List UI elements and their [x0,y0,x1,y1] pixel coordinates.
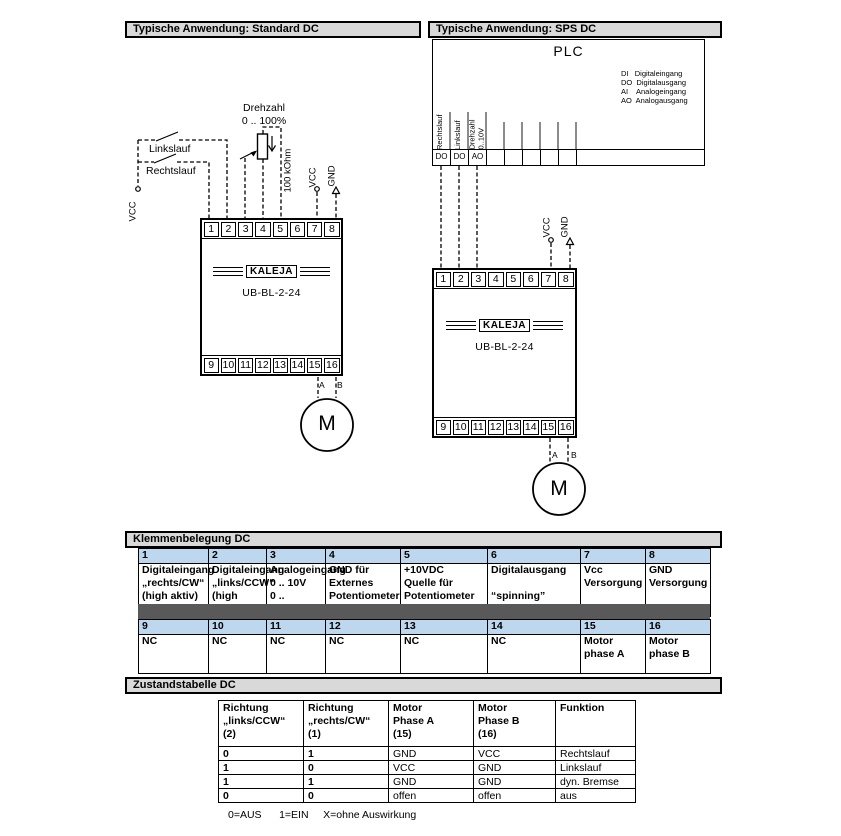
terminal-row-top: 12345678 [434,270,575,288]
terminal-cell: 2 [221,222,236,237]
table-header-cell: 8 [646,549,711,564]
terminal-cell: 3 [471,272,487,287]
table-cell: 0 [304,761,389,775]
table-cell: offen [474,789,556,803]
terminal-cell: 13 [506,420,522,435]
pot-wiper-arrowhead [251,151,258,157]
controller-left: 12345678 KALEJA UB-BL-2-24 9101112131415… [200,218,343,376]
terminal-cell: 2 [453,272,469,287]
table-cell: 0 [219,747,304,761]
terminal-number-row: 910111213141516 [139,620,711,635]
zustand-header-row: Richtung „links/CCW“ (2)Richtung „rechts… [219,701,636,747]
plc-port-row: DODOAO [433,149,704,165]
plc-port-cell [577,150,704,165]
device-body: KALEJA UB-BL-2-24 [434,288,575,418]
logo-deco-right [300,267,330,276]
table-header-cell: 11 [267,620,326,635]
plc-port-cell [523,150,541,165]
table-cell: 1 [304,775,389,789]
table-header-cell: Richtung „links/CCW“ (2) [219,701,304,747]
klemmen-table-lower: 910111213141516 NCNCNCNCNCNCMotor phase … [138,619,711,674]
brand-name: KALEJA [479,319,530,332]
table-header-cell: Funktion [556,701,636,747]
table-cell: NC [267,635,326,674]
table-header-cell: 13 [401,620,488,635]
table-cell: GND [474,761,556,775]
label-gnd-left: GND [328,153,339,187]
switch-blade-linkslauf [156,132,178,141]
label-rechtslauf: Rechtslauf [146,165,196,177]
plc-legend-line: AI Analogeingang [621,87,688,96]
label-vcc-right: VCC [543,206,554,238]
plc-port-label-drehzahl: Drehzahl 0..10V [469,112,486,150]
footnote: 0=AUS 1=EIN X=ohne Auswirkung [228,809,416,821]
plc-do-wires [441,166,477,268]
device-body: KALEJA UB-BL-2-24 [202,238,341,356]
motor-phase-a-label-left: A [319,380,325,390]
plc-port-cell: DO [451,150,469,165]
terminal-cell: 16 [324,358,339,373]
table-cell: VCC [389,761,474,775]
terminal-cell: 15 [307,358,322,373]
terminal-cell: 1 [436,272,452,287]
zustand-row: 01GNDVCCRechtslauf [219,747,636,761]
terminal-cell: 9 [436,420,452,435]
section-header-standard-dc: Typische Anwendung: Standard DC [125,21,421,38]
terminal-cell: 8 [324,222,339,237]
table-cell: 0 [304,789,389,803]
terminal-number-row: 12345678 [139,549,711,564]
zustand-row: 00offenoffenaus [219,789,636,803]
logo-deco-left [213,267,243,276]
table-cell: Motor phase A [581,635,646,674]
table-header-cell: 12 [326,620,401,635]
table-cell: 1 [219,775,304,789]
table-header-cell: Richtung „rechts/CW“ (1) [304,701,389,747]
table-cell: Motor phase B [646,635,711,674]
terminal-row-bottom: 910111213141516 [434,418,575,436]
table-header-cell: 9 [139,620,209,635]
table-header-cell: 6 [488,549,581,564]
table-header-cell: 16 [646,620,711,635]
table-cell: NC [209,635,267,674]
plc-port-cell: DO [433,150,451,165]
plc-legend-line: DI Digitaleingang [621,69,688,78]
terminal-cell: 14 [290,358,305,373]
terminal-cell: 4 [255,222,270,237]
logo-deco-right [533,321,563,330]
section-header-sps-dc: Typische Anwendung: SPS DC [428,21,722,38]
table-cell: NC [488,635,581,674]
table-cell: GND [389,747,474,761]
vcc-terminal-circle-right [549,238,554,243]
terminal-cell: 12 [255,358,270,373]
plc-port-cell [559,150,577,165]
plc-port-cell [505,150,523,165]
table-cell: dyn. Bremse [556,775,636,789]
motor-phase-b-label-left: B [337,380,343,390]
table-cell: NC [139,635,209,674]
model-number: UB-BL-2-24 [202,287,341,299]
label-linkslauf: Linkslauf [149,143,190,155]
table-cell: NC [401,635,488,674]
potentiometer-body [258,134,268,159]
plc-title: PLC [433,43,704,59]
terminal-cell: 9 [204,358,219,373]
terminal-cell: 1 [204,222,219,237]
brand-name: KALEJA [246,265,297,278]
model-number: UB-BL-2-24 [434,341,575,353]
zustand-row: 11GNDGNDdyn. Bremse [219,775,636,789]
table-header-cell: 14 [488,620,581,635]
terminal-row-bottom: 910111213141516 [202,356,341,374]
terminal-cell: 6 [290,222,305,237]
terminal-function-row: NCNCNCNCNCNCMotor phase AMotor phase B [139,635,711,674]
controller-right: 12345678 KALEJA UB-BL-2-24 9101112131415… [432,268,577,438]
terminal-cell: 10 [221,358,236,373]
label-drehzahl-pot: Drehzahl 0 .. 100% [233,102,295,128]
label-gnd-right: GND [561,204,572,238]
switch-blade-rechtslauf [154,154,176,163]
terminal-cell: 4 [488,272,504,287]
terminal-cell: 15 [541,420,557,435]
terminal-row-top: 12345678 [202,220,341,238]
terminal-cell: 16 [558,420,574,435]
label-100kohm: 100 kOhm [284,143,295,193]
table-header-cell: 4 [326,549,401,564]
brand-logo: KALEJA [202,265,341,278]
gnd-arrow-left [333,187,340,194]
terminal-cell: 12 [488,420,504,435]
plc-legend: DI DigitaleingangDO DigitalausgangAI Ana… [621,69,688,105]
terminal-cell: 3 [238,222,253,237]
plc-port-label-rechtslauf: Rechtslauf [436,112,446,150]
plc-port-cell [487,150,505,165]
terminal-cell: 8 [558,272,574,287]
separator-bar [138,604,710,619]
terminal-cell: 11 [471,420,487,435]
zustand-row: 10VCCGNDLinkslauf [219,761,636,775]
section-header-zustandstabelle: Zustandstabelle DC [125,677,722,694]
table-cell: Rechtslauf [556,747,636,761]
brand-logo: KALEJA [434,319,575,332]
table-cell: 0 [219,789,304,803]
table-cell: Linkslauf [556,761,636,775]
table-cell: NC [326,635,401,674]
table-header-cell: 3 [267,549,326,564]
gnd-arrow-right [567,238,574,245]
table-cell: 1 [304,747,389,761]
zustand-table: Richtung „links/CCW“ (2)Richtung „rechts… [218,700,636,803]
terminal-cell: 10 [453,420,469,435]
terminal-cell: 7 [541,272,557,287]
table-cell: aus [556,789,636,803]
terminal-cell: 11 [238,358,253,373]
terminal-cell: 7 [307,222,322,237]
terminal-cell: 5 [506,272,522,287]
table-cell: GND [389,775,474,789]
table-cell: GND [474,775,556,789]
table-header-cell: 7 [581,549,646,564]
motor-label-right: M [537,477,581,501]
table-header-cell: Motor Phase A (15) [389,701,474,747]
plc-port-label-linkslauf: Linkslauf [454,112,464,150]
datasheet-page: Typische Anwendung: Standard DC Typische… [0,0,841,836]
terminal-cell: 5 [273,222,288,237]
motor-phase-b-label-right: B [571,450,577,460]
plc-port-cell [541,150,559,165]
label-vcc-left: VCC [309,156,320,188]
table-header-cell: 1 [139,549,209,564]
table-header-cell: 10 [209,620,267,635]
terminal-cell: 13 [273,358,288,373]
label-vcc-feed: VCC [129,190,140,222]
terminal-cell: 6 [523,272,539,287]
motor-label-left: M [305,412,349,436]
table-header-cell: 2 [209,549,267,564]
table-cell: VCC [474,747,556,761]
terminal-cell: 14 [523,420,539,435]
table-header-cell: 15 [581,620,646,635]
table-header-cell: 5 [401,549,488,564]
motor-phase-a-label-right: A [552,450,558,460]
table-cell: 1 [219,761,304,775]
table-cell: offen [389,789,474,803]
section-header-klemmenbelegung: Klemmenbelegung DC [125,531,722,548]
plc-port-cell: AO [469,150,487,165]
plc-legend-line: AO Analogausgang [621,96,688,105]
plc-legend-line: DO Digitalausgang [621,78,688,87]
logo-deco-left [446,321,476,330]
table-header-cell: Motor Phase B (16) [474,701,556,747]
